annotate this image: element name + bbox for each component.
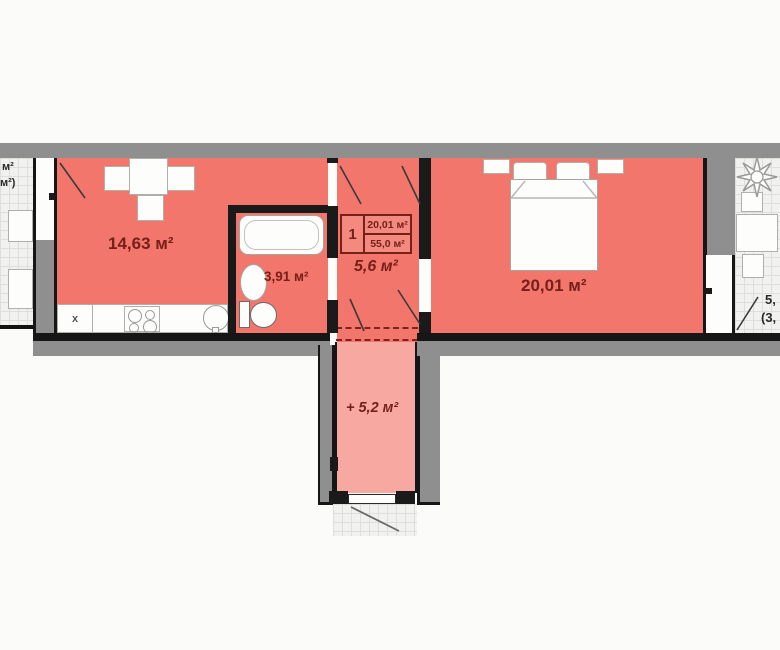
bathtub (239, 215, 324, 255)
corridor-wall-notch (330, 457, 338, 471)
entry-door-jamb-right (396, 491, 415, 505)
wall-left-block (33, 240, 57, 333)
floor-plan: м² м²) 14,63 м² x 3,91 м² 1 20,01 м² 55,… (0, 0, 780, 650)
wall-hallway-right-seg1 (419, 158, 431, 259)
legend-room-area: 20,01 м² (365, 216, 410, 233)
area-legend: 1 20,01 м² 55,0 м² (340, 214, 412, 254)
door-opening-bathroom (328, 258, 337, 300)
bed (510, 179, 598, 271)
bathroom-wall-top (228, 205, 338, 213)
window-right-mullion (703, 288, 712, 294)
toilet-bowl (250, 302, 277, 328)
fridge-marker: x (72, 313, 78, 325)
door-opening-kitchen (328, 163, 337, 206)
nightstand-left (483, 159, 510, 174)
balcony-right-chair-2 (742, 254, 764, 278)
door-opening-bedroom (420, 259, 431, 312)
bathroom-wall-left (228, 205, 236, 333)
stove-burner-4 (143, 320, 157, 334)
bathtub-inner (244, 220, 319, 250)
wall-hallway-left-seg3 (327, 300, 338, 333)
room-kitchen-living-label: 14,63 м² (108, 234, 174, 254)
room-entrance-label: + 5,2 м² (346, 400, 398, 416)
balcony-left-text-2: м²) (0, 177, 15, 189)
room-bedroom-label: 20,01 м² (521, 276, 587, 296)
legend-apartment-number: 1 (342, 216, 363, 252)
legend-areas: 20,01 м² 55,0 м² (363, 216, 410, 252)
dining-table (129, 158, 168, 195)
entry-lobby-tiles (333, 504, 417, 536)
legend-total-area: 55,0 м² (365, 233, 410, 252)
balcony-right-chair-1 (741, 192, 763, 212)
window-right-balcony (703, 255, 735, 333)
room-entrance (335, 342, 417, 493)
hallway-entrance-dashed-line-2 (336, 339, 418, 341)
stove-burner-1 (128, 309, 142, 323)
room-bathroom-label: 3,91 м² (264, 269, 309, 284)
entry-door-jamb-left (329, 491, 348, 505)
dining-chair-bottom (137, 195, 164, 221)
dining-chair-right (167, 166, 195, 191)
bathroom-sink (240, 264, 267, 301)
wall-right-block (703, 158, 735, 255)
entry-door-leaf (348, 494, 396, 504)
bottom-wall-left (33, 333, 330, 356)
balcony-left-table-2 (8, 269, 33, 309)
room-hallway-label: 5,6 м² (354, 258, 398, 276)
dining-chair-left (104, 166, 131, 191)
stove (124, 306, 160, 332)
balcony-right-table (736, 214, 778, 252)
bottom-wall-right (417, 333, 780, 356)
stove-burner-3 (129, 323, 139, 333)
balcony-left-table-1 (8, 210, 33, 242)
corridor-wall-left (318, 345, 335, 505)
balcony-right-text-1: 5, (765, 292, 776, 307)
nightstand-right (597, 159, 624, 174)
window-left-mullion (49, 193, 55, 200)
wall-hallway-left-seg2 (327, 206, 338, 258)
balcony-left-text-1: м² (2, 161, 14, 173)
toilet-tank (239, 301, 250, 328)
corridor-wall-right (417, 356, 440, 505)
stove-burner-2 (145, 310, 155, 320)
balcony-right-text-2: (3, (761, 310, 776, 325)
hallway-entrance-dashed-line-1 (336, 327, 418, 329)
fridge-cell: x (57, 304, 93, 333)
wall-hallway-right-seg2 (419, 312, 431, 333)
